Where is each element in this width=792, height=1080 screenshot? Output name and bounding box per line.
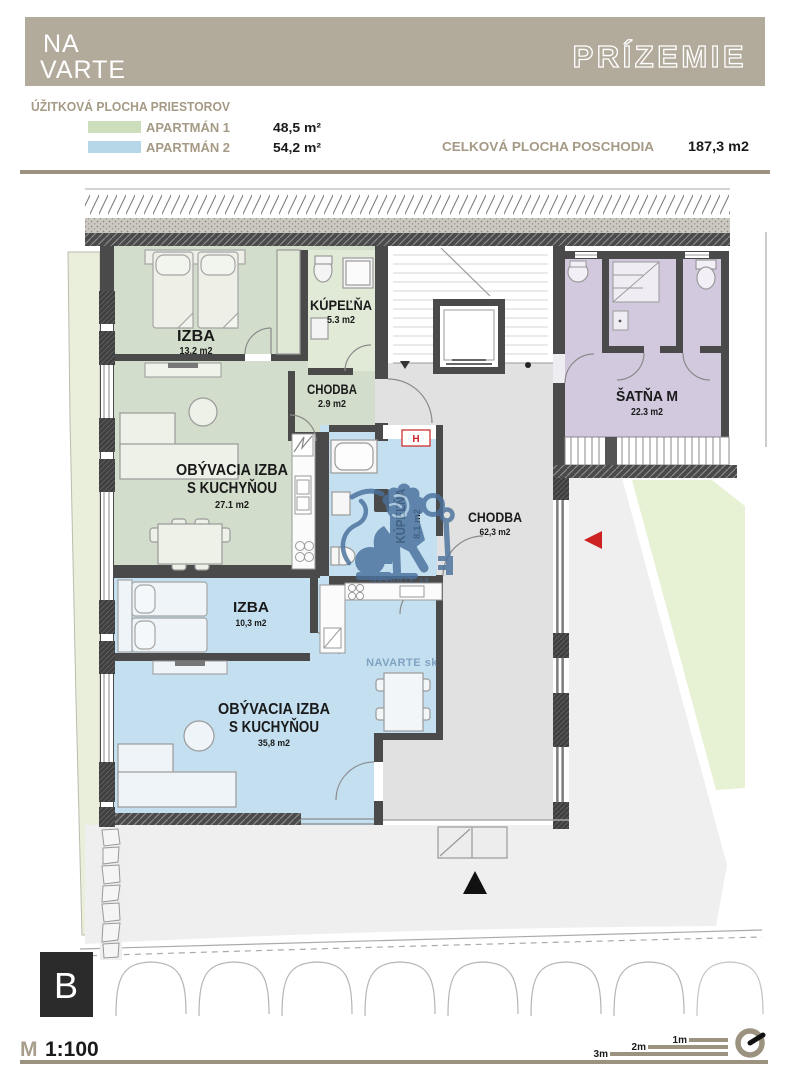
svg-text:S KUCHYŇOU: S KUCHYŇOU (187, 478, 277, 497)
svg-text:OBÝVACIA IZBA: OBÝVACIA IZBA (176, 460, 288, 479)
svg-text:NAVARTE sk: NAVARTE sk (370, 575, 430, 585)
svg-text:1:100: 1:100 (45, 1038, 99, 1061)
svg-text:APARTMÁN 1: APARTMÁN 1 (146, 120, 230, 135)
svg-text:27.1 m2: 27.1 m2 (215, 500, 249, 511)
svg-text:22.3 m2: 22.3 m2 (631, 407, 663, 418)
svg-text:IZBA: IZBA (233, 599, 269, 616)
svg-text:PRÍZEMIE: PRÍZEMIE (573, 39, 747, 74)
svg-text:ŠATŇA M: ŠATŇA M (616, 387, 678, 405)
svg-text:H: H (412, 434, 419, 445)
svg-text:62,3 m2: 62,3 m2 (480, 527, 511, 538)
svg-text:ÚŽITKOVÁ PLOCHA PRIESTOROV: ÚŽITKOVÁ PLOCHA PRIESTOROV (31, 99, 231, 114)
svg-text:5.3 m2: 5.3 m2 (327, 315, 355, 326)
svg-text:1m: 1m (673, 1035, 688, 1046)
svg-text:NA: NA (43, 30, 80, 58)
svg-text:2.9 m2: 2.9 m2 (318, 399, 346, 410)
svg-text:NAVARTE sk: NAVARTE sk (366, 657, 438, 669)
svg-text:CELKOVÁ PLOCHA POSCHODIA: CELKOVÁ PLOCHA POSCHODIA (442, 139, 654, 154)
svg-text:2m: 2m (632, 1042, 647, 1053)
svg-text:M: M (20, 1038, 38, 1061)
svg-text:187,3 m2: 187,3 m2 (688, 139, 749, 154)
svg-text:IZBA: IZBA (177, 328, 215, 345)
svg-text:OBÝVACIA IZBA: OBÝVACIA IZBA (218, 699, 330, 718)
svg-text:35,8 m2: 35,8 m2 (258, 738, 290, 749)
svg-text:54,2 m²: 54,2 m² (273, 141, 321, 155)
svg-text:KÚPEĽŇA: KÚPEĽŇA (310, 296, 372, 313)
svg-text:S KUCHYŇOU: S KUCHYŇOU (229, 717, 319, 736)
svg-text:CHODBA: CHODBA (468, 510, 522, 525)
svg-text:10,3 m2: 10,3 m2 (236, 618, 267, 629)
svg-text:3m: 3m (594, 1049, 609, 1060)
svg-text:CHODBA: CHODBA (307, 381, 357, 397)
svg-text:13.2 m2: 13.2 m2 (180, 346, 213, 357)
svg-text:APARTMÁN 2: APARTMÁN 2 (146, 140, 230, 155)
svg-text:48,5 m²: 48,5 m² (273, 121, 321, 135)
svg-text:B: B (54, 965, 78, 1006)
svg-text:VARTE: VARTE (40, 56, 126, 84)
